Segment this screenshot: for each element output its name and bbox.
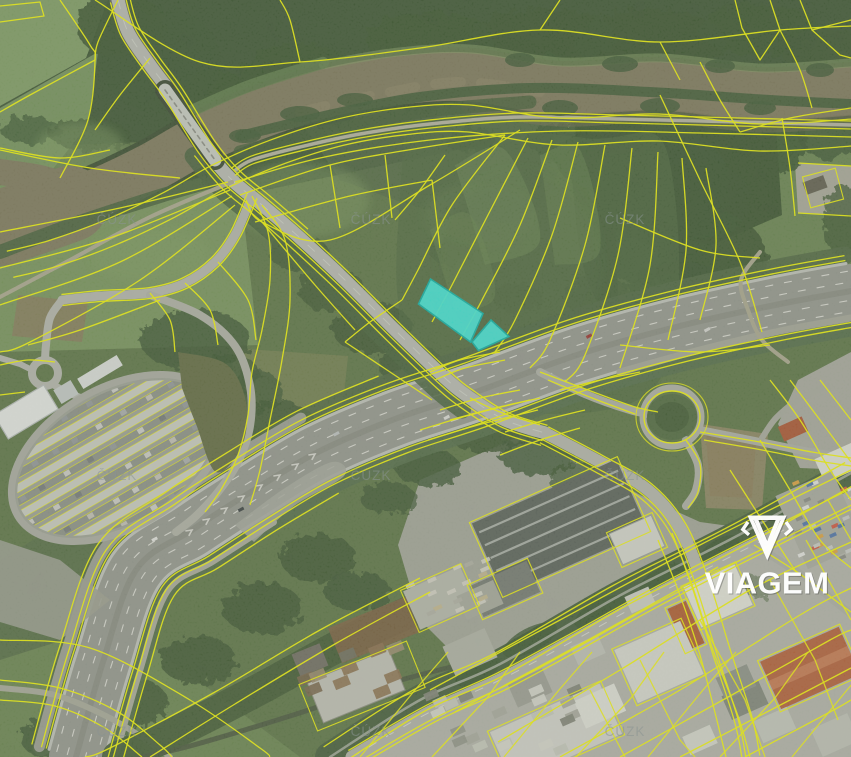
svg-text:ČÚZK: ČÚZK [97,468,138,483]
svg-text:ČÚZK: ČÚZK [351,468,392,483]
svg-text:ČÚZK: ČÚZK [351,724,392,739]
svg-text:ČÚZK: ČÚZK [351,212,392,227]
svg-text:ČÚZK: ČÚZK [605,212,646,227]
svg-text:ČÚZK: ČÚZK [97,212,138,227]
svg-text:ČÚZK: ČÚZK [605,468,646,483]
svg-text:ČÚZK: ČÚZK [605,724,646,739]
svg-text:VIAGEM: VIAGEM [705,566,830,601]
svg-text:ČÚZK: ČÚZK [97,724,138,739]
